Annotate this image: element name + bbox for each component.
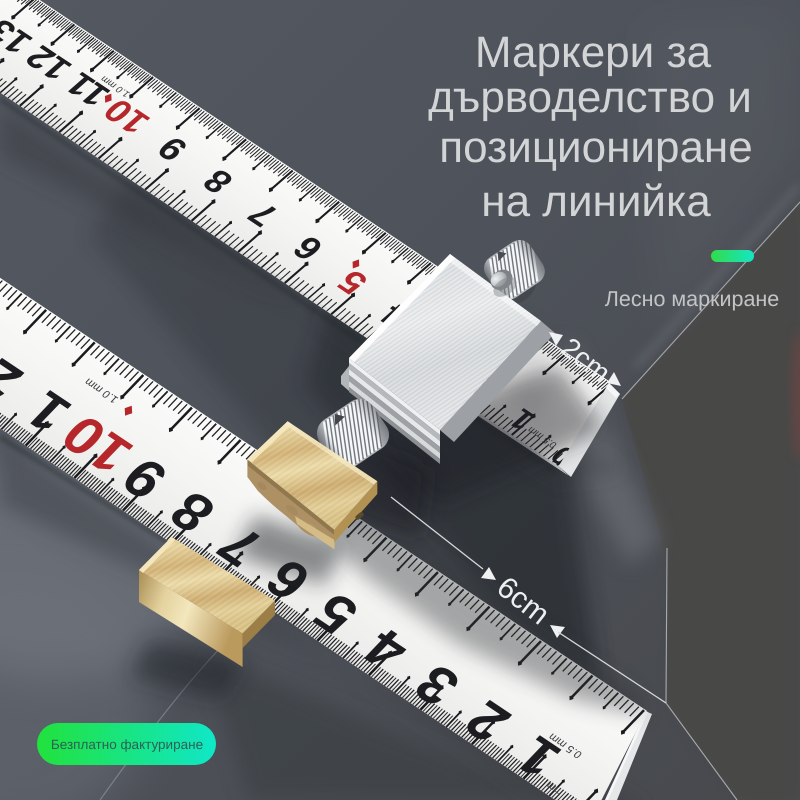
svg-text:позициониране: позициониране: [439, 123, 752, 172]
svg-text:на линийка: на линийка: [481, 177, 711, 226]
svg-text:дърводелство и: дърводелство и: [428, 73, 752, 122]
svg-text:Лесно маркиране: Лесно маркиране: [605, 287, 779, 311]
svg-text:Маркери за: Маркери за: [475, 28, 712, 77]
svg-text:Безплатно фактуриране: Безплатно фактуриране: [51, 737, 203, 752]
